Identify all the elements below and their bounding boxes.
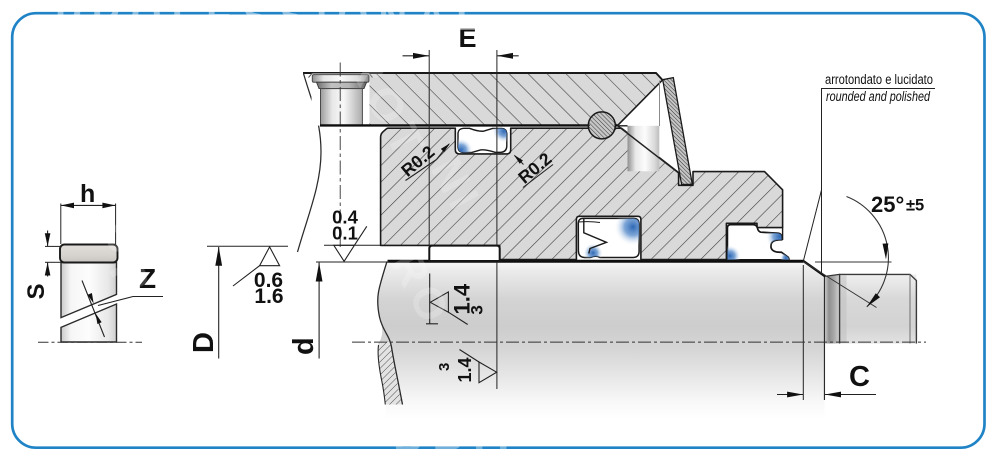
svg-text:25°: 25° <box>871 192 904 217</box>
svg-text:1.4: 1.4 <box>455 357 475 382</box>
svg-text:3: 3 <box>436 363 453 371</box>
svg-text:0.1: 0.1 <box>332 223 358 244</box>
svg-text:d: d <box>288 337 320 355</box>
svg-text:D: D <box>188 332 220 353</box>
svg-text:PROFESSIONAL: PROFESSIONAL <box>55 0 491 39</box>
svg-text:rounded and polished: rounded and polished <box>826 89 930 104</box>
svg-text:C: C <box>849 361 870 393</box>
svg-text:1.6: 1.6 <box>254 285 283 308</box>
svg-text:±5: ±5 <box>906 197 924 215</box>
svg-text:3: 3 <box>468 305 487 314</box>
svg-text:h: h <box>80 180 95 208</box>
svg-text:PRO: PRO <box>393 423 518 461</box>
svg-text:S: S <box>23 283 50 299</box>
svg-text:arrotondato e lucidato: arrotondato e lucidato <box>825 72 933 87</box>
